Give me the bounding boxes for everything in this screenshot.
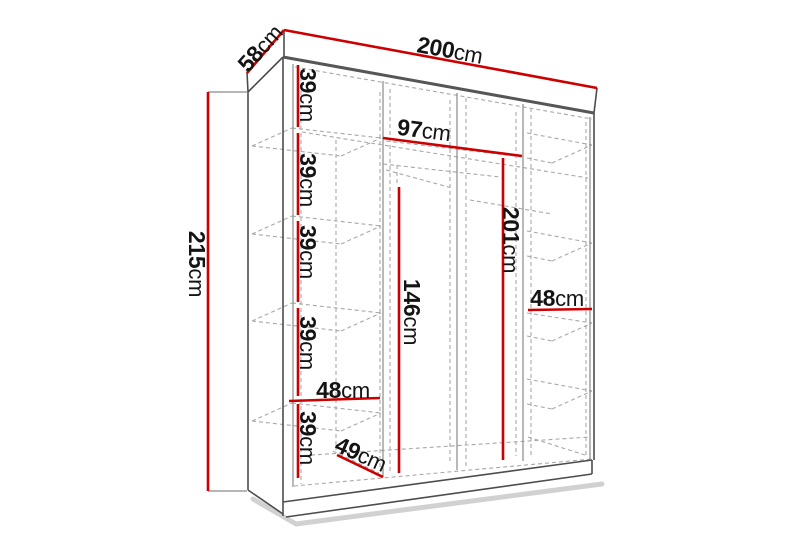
- dim-shelf-gap-label-4: 39cm: [295, 316, 321, 370]
- dim-interior-height-label: 201cm: [498, 207, 524, 273]
- dim-interior-depth-label: 49cm: [331, 431, 391, 477]
- dim-shelf-gap-label-1: 39cm: [295, 68, 321, 122]
- dim-height-label: 215cm: [184, 231, 210, 297]
- dim-width-label: 200cm: [415, 31, 485, 68]
- dimension-lines-red: [208, 30, 597, 491]
- dim-depth-label: 58cm: [232, 19, 287, 76]
- wardrobe-dimension-diagram: 200cm 58cm 215cm 39cm 39cm 39cm 39cm 39c…: [0, 0, 800, 533]
- cabinet-top-front-edge: [283, 57, 594, 113]
- dim-shelf-width-right-label: 48cm: [530, 285, 584, 311]
- diagram-canvas: 200cm 58cm 215cm 39cm 39cm 39cm 39cm 39c…: [0, 0, 800, 533]
- dim-shelf-gap-label-2: 39cm: [295, 153, 321, 207]
- dim-shelf-gap-label-3: 39cm: [295, 225, 321, 279]
- dim-shelf-gap-label-5: 39cm: [295, 411, 321, 465]
- floor-shadow: [253, 484, 602, 524]
- dim-shelf-width-left-label: 48cm: [316, 377, 370, 403]
- dim-hanging-height-label: 146cm: [399, 279, 425, 345]
